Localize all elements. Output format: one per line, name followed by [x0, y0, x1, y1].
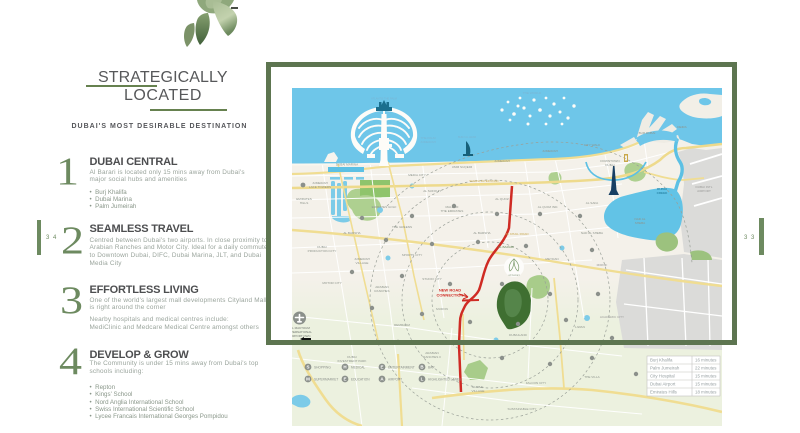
- svg-text:INVESTMENT PARK: INVESTMENT PARK: [338, 359, 368, 363]
- svg-text:SUPERMARKET: SUPERMARKET: [314, 378, 338, 382]
- svg-text:22 minutes: 22 minutes: [695, 366, 717, 371]
- svg-text:HIGHLIGHTED LANES: HIGHLIGHTED LANES: [428, 378, 461, 382]
- svg-text:EDUCATION: EDUCATION: [351, 378, 370, 382]
- svg-text:15 minutes: 15 minutes: [695, 374, 717, 379]
- svg-text:Dubai Airport: Dubai Airport: [650, 382, 676, 387]
- svg-text:Burj Khalifa: Burj Khalifa: [650, 358, 673, 363]
- svg-text:AIRPORT: AIRPORT: [388, 378, 402, 382]
- svg-text:S: S: [306, 365, 309, 370]
- svg-text:Emirates Hills: Emirates Hills: [650, 390, 678, 395]
- svg-text:18 minutes: 18 minutes: [695, 390, 717, 395]
- svg-text:Palm Jumeirah: Palm Jumeirah: [650, 366, 680, 371]
- svg-text:ENTERTAINMENT: ENTERTAINMENT: [388, 366, 415, 370]
- svg-text:SHOPPING: SHOPPING: [314, 366, 331, 370]
- svg-text:L: L: [421, 377, 424, 382]
- svg-text:E: E: [343, 377, 346, 382]
- svg-text:E: E: [380, 365, 383, 370]
- svg-text:City Hospital: City Hospital: [650, 374, 675, 379]
- svg-text:H: H: [343, 365, 346, 370]
- svg-text:RANCHES II: RANCHES II: [423, 355, 441, 359]
- svg-text:FALCON CITY: FALCON CITY: [526, 381, 546, 385]
- svg-text:BAR: BAR: [428, 366, 435, 370]
- svg-text:SUSTAINABLE CITY: SUSTAINABLE CITY: [508, 407, 537, 411]
- svg-text:MEDICAL: MEDICAL: [351, 366, 365, 370]
- svg-text:M: M: [306, 377, 310, 382]
- svg-text:VILLAGE: VILLAGE: [472, 389, 485, 393]
- svg-text:16 minutes: 16 minutes: [695, 358, 717, 363]
- svg-text:THE VILLA: THE VILLA: [584, 375, 600, 379]
- svg-text:15 minutes: 15 minutes: [695, 382, 717, 387]
